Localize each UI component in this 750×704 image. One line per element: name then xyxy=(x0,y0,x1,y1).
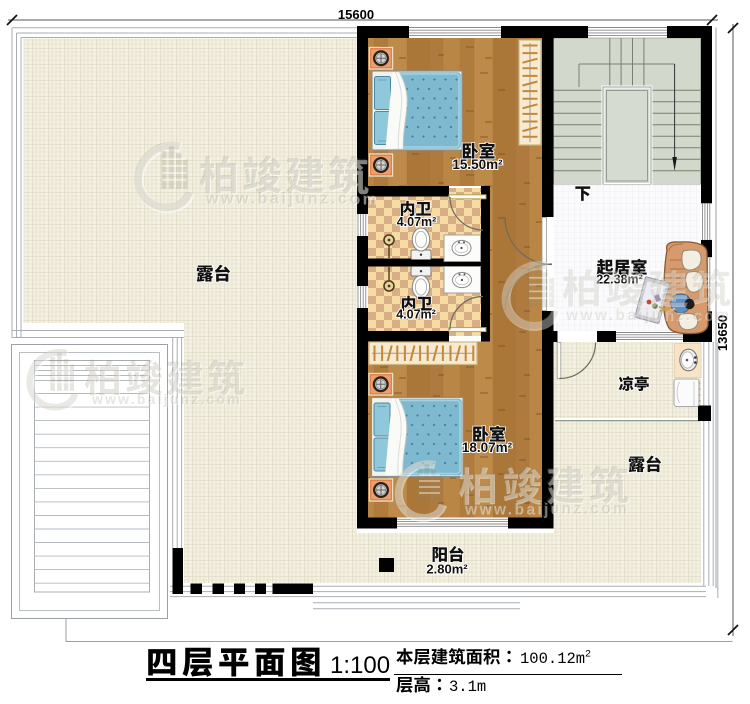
svg-text:www.baijunz.com: www.baijunz.com xyxy=(91,391,242,407)
svg-text:www.baijunz.com: www.baijunz.com xyxy=(565,307,731,324)
svg-text:100.12m: 100.12m xyxy=(520,650,585,668)
svg-text:15600: 15600 xyxy=(338,7,374,22)
svg-text:4.07m²: 4.07m² xyxy=(396,307,436,321)
svg-text:4.07m²: 4.07m² xyxy=(397,215,437,229)
svg-text:www.baijunz.com: www.baijunz.com xyxy=(205,191,379,208)
svg-text:www.baijunz.com: www.baijunz.com xyxy=(463,501,629,518)
svg-text:2: 2 xyxy=(585,650,591,661)
svg-text:3.1m: 3.1m xyxy=(449,678,486,696)
svg-text:18.07m²: 18.07m² xyxy=(462,440,513,455)
svg-text:1:100: 1:100 xyxy=(330,652,390,679)
svg-text:2.80m²: 2.80m² xyxy=(426,562,468,577)
svg-text:15.50m²: 15.50m² xyxy=(452,157,503,172)
